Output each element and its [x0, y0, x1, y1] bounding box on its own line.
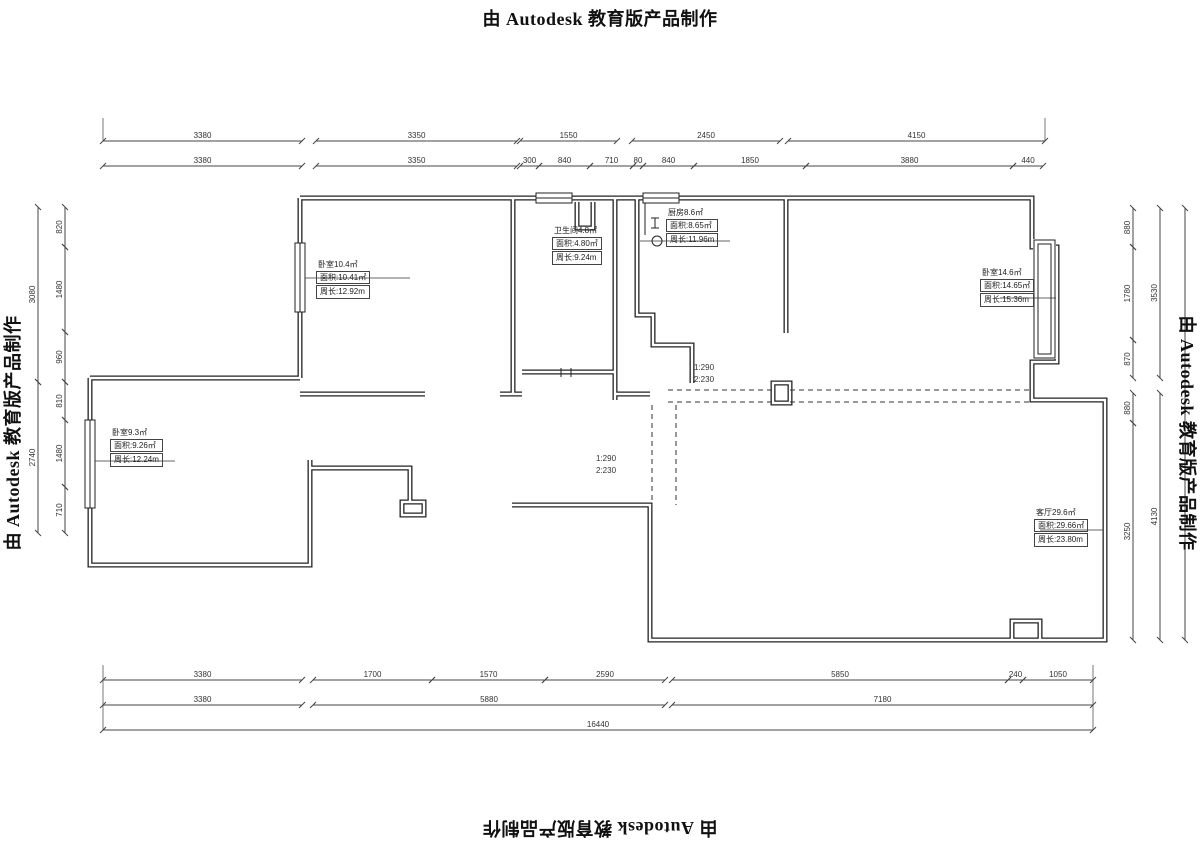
dimension-label: 840: [558, 156, 572, 165]
room-metric-line: 面积:29.66㎡: [1034, 519, 1088, 532]
dimension-label: 810: [55, 394, 64, 408]
room-name-line: 卧室10.4㎡: [316, 260, 370, 270]
room-metric-line: 面积:8.65㎡: [666, 219, 718, 232]
room-area-label: 客厅29.6㎡面积:29.66㎡周长:23.80m: [1034, 508, 1088, 547]
dimension-label: 3080: [28, 285, 37, 303]
room-metric-line: 面积:4.80㎡: [552, 237, 602, 250]
dimension-label: 7180: [874, 695, 892, 704]
window-outer-left: [85, 420, 95, 508]
dimension-label: 3350: [408, 156, 426, 165]
dimension-label: 1480: [55, 444, 64, 462]
watermark-left: 由 Autodesk 教育版产品制作: [0, 273, 25, 593]
dimension-label: 840: [662, 156, 676, 165]
dimension-label: 16440: [587, 720, 610, 729]
room-area-label: 卧室9.3㎡面积:9.26㎡周长:12.24m: [110, 428, 163, 467]
dimension-label: 880: [1123, 401, 1132, 415]
dimension-label: 1570: [480, 670, 498, 679]
window-bedroom-left: [295, 243, 305, 312]
dimension-label: 300: [523, 156, 537, 165]
dimension-label: 1850: [741, 156, 759, 165]
dimension-label: 960: [55, 350, 64, 364]
dimension-label: 3380: [194, 670, 212, 679]
dimension-label: 3250: [1123, 522, 1132, 540]
dimension-label: 1780: [1123, 284, 1132, 302]
beam-note: 1:2902:230: [596, 453, 616, 477]
room-metric-line: 面积:14.65㎡: [980, 279, 1034, 292]
room-metric-line: 周长:12.24m: [110, 453, 163, 466]
room-area-label: 卧室14.6㎡面积:14.65㎡周长:15.36m: [980, 268, 1034, 307]
plumbing-fixture: [645, 203, 662, 246]
room-name-line: 卧室9.3㎡: [110, 428, 163, 438]
room-metric-line: 周长:12.92m: [316, 285, 370, 298]
room-area-label: 卧室10.4㎡面积:10.41㎡周长:12.92m: [316, 260, 370, 299]
room-metric-line: 周长:9.24m: [552, 251, 602, 264]
dimension-label: 3380: [194, 131, 212, 140]
cad-floor-plan-page: { "watermark": { "text": "由 Autodesk 教育版…: [0, 0, 1200, 848]
dimension-label: 5850: [831, 670, 849, 679]
dimension-label: 1050: [1049, 670, 1067, 679]
dimension-label: 3880: [901, 156, 919, 165]
room-name-line: 卧室14.6㎡: [980, 268, 1034, 278]
beam-dashed-lines: [652, 390, 1032, 505]
watermark-right: 由 Autodesk 教育版产品制作: [1175, 273, 1200, 593]
window-top-2: [643, 193, 679, 203]
dimension-label: 1550: [560, 131, 578, 140]
dimension-label: 3530: [1150, 284, 1159, 302]
dimension-label: 870: [1123, 352, 1132, 366]
dimension-label: 3380: [194, 156, 212, 165]
room-metric-line: 周长:11.96m: [666, 233, 718, 246]
room-name-line: 厨房8.6㎡: [666, 208, 718, 218]
room-metric-line: 面积:9.26㎡: [110, 439, 163, 452]
window-top-1: [536, 193, 572, 203]
dimension-label: 4130: [1150, 507, 1159, 525]
dimension-label: 880: [1123, 220, 1132, 234]
dimension-label: 710: [605, 156, 619, 165]
watermark-top: 由 Autodesk 教育版产品制作: [482, 5, 717, 31]
floor-plan-drawing: 3380335015502450415033803350300840710808…: [0, 0, 1200, 848]
watermark-bottom: 由 Autodesk 教育版产品制作: [482, 816, 717, 842]
dimension-label: 710: [55, 503, 64, 517]
room-area-label: 卫生间4.8㎡面积:4.80㎡周长:9.24m: [552, 226, 602, 265]
dimension-label: 5880: [480, 695, 498, 704]
dimension-label: 3350: [408, 131, 426, 140]
dimension-label: 2740: [28, 448, 37, 466]
dimension-label: 3380: [194, 695, 212, 704]
dimension-label: 820: [55, 220, 64, 234]
room-metric-line: 周长:23.80m: [1034, 533, 1088, 546]
label-leader-lines: [95, 241, 1103, 530]
dimension-annotations: 3380335015502450415033803350300840710808…: [28, 131, 1188, 733]
dimension-label: 240: [1009, 670, 1023, 679]
dimension-label: 1480: [55, 280, 64, 298]
room-name-line: 客厅29.6㎡: [1034, 508, 1088, 518]
bay-window-right: [1033, 239, 1056, 359]
dimension-label: 2450: [697, 131, 715, 140]
room-area-label: 厨房8.6㎡面积:8.65㎡周长:11.96m: [666, 208, 718, 247]
dimension-label: 2590: [596, 670, 614, 679]
dimension-label: 80: [634, 156, 643, 165]
dimension-label: 440: [1021, 156, 1035, 165]
room-metric-line: 周长:15.36m: [980, 293, 1034, 306]
dimension-label: 4150: [908, 131, 926, 140]
dimension-label: 1700: [364, 670, 382, 679]
beam-note: 1:2902:230: [694, 362, 714, 386]
room-metric-line: 面积:10.41㎡: [316, 271, 370, 284]
room-name-line: 卫生间4.8㎡: [552, 226, 602, 236]
